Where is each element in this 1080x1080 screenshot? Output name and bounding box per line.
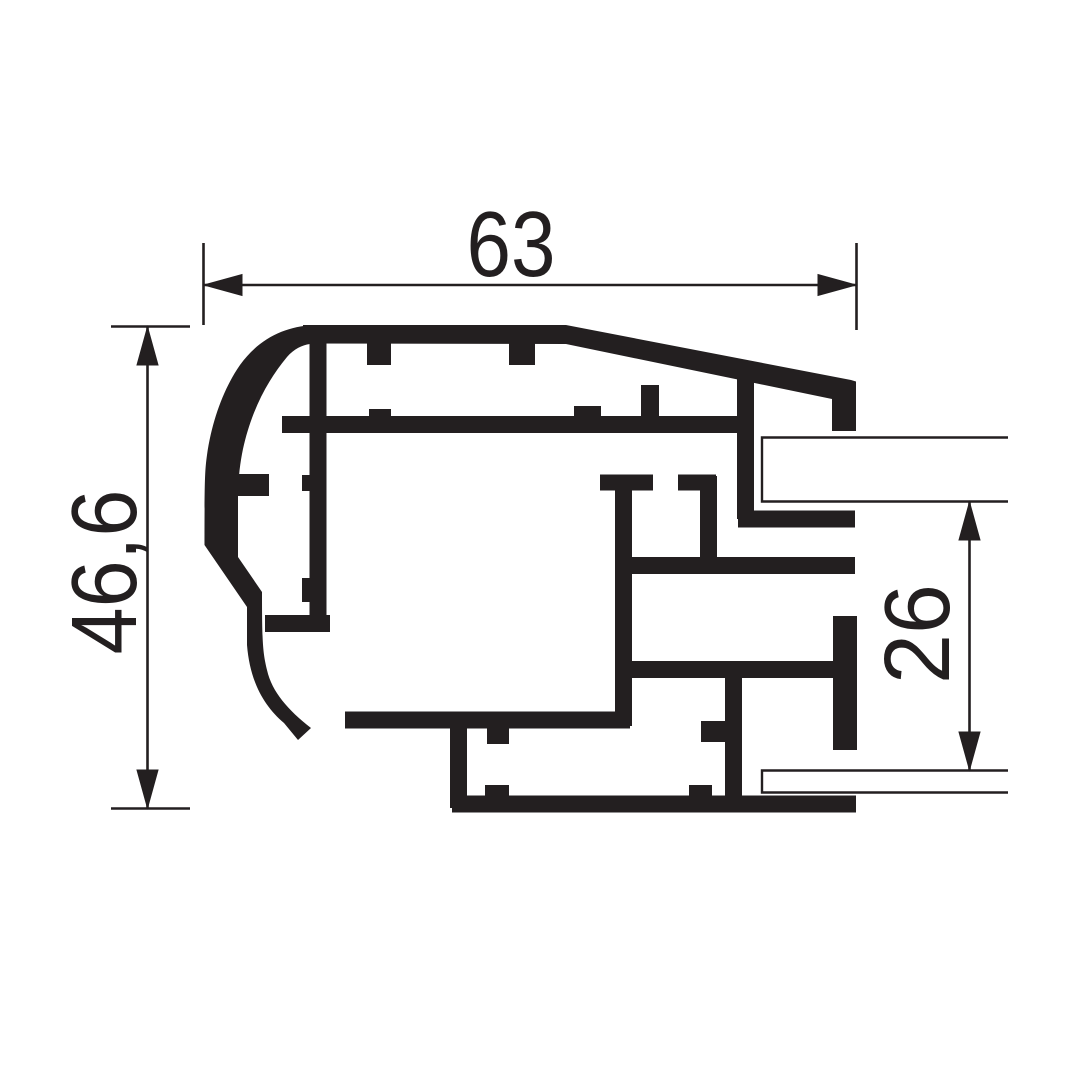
svg-text:26: 26 — [865, 584, 969, 684]
svg-text:46,6: 46,6 — [52, 490, 156, 655]
svg-text:63: 63 — [467, 192, 556, 296]
